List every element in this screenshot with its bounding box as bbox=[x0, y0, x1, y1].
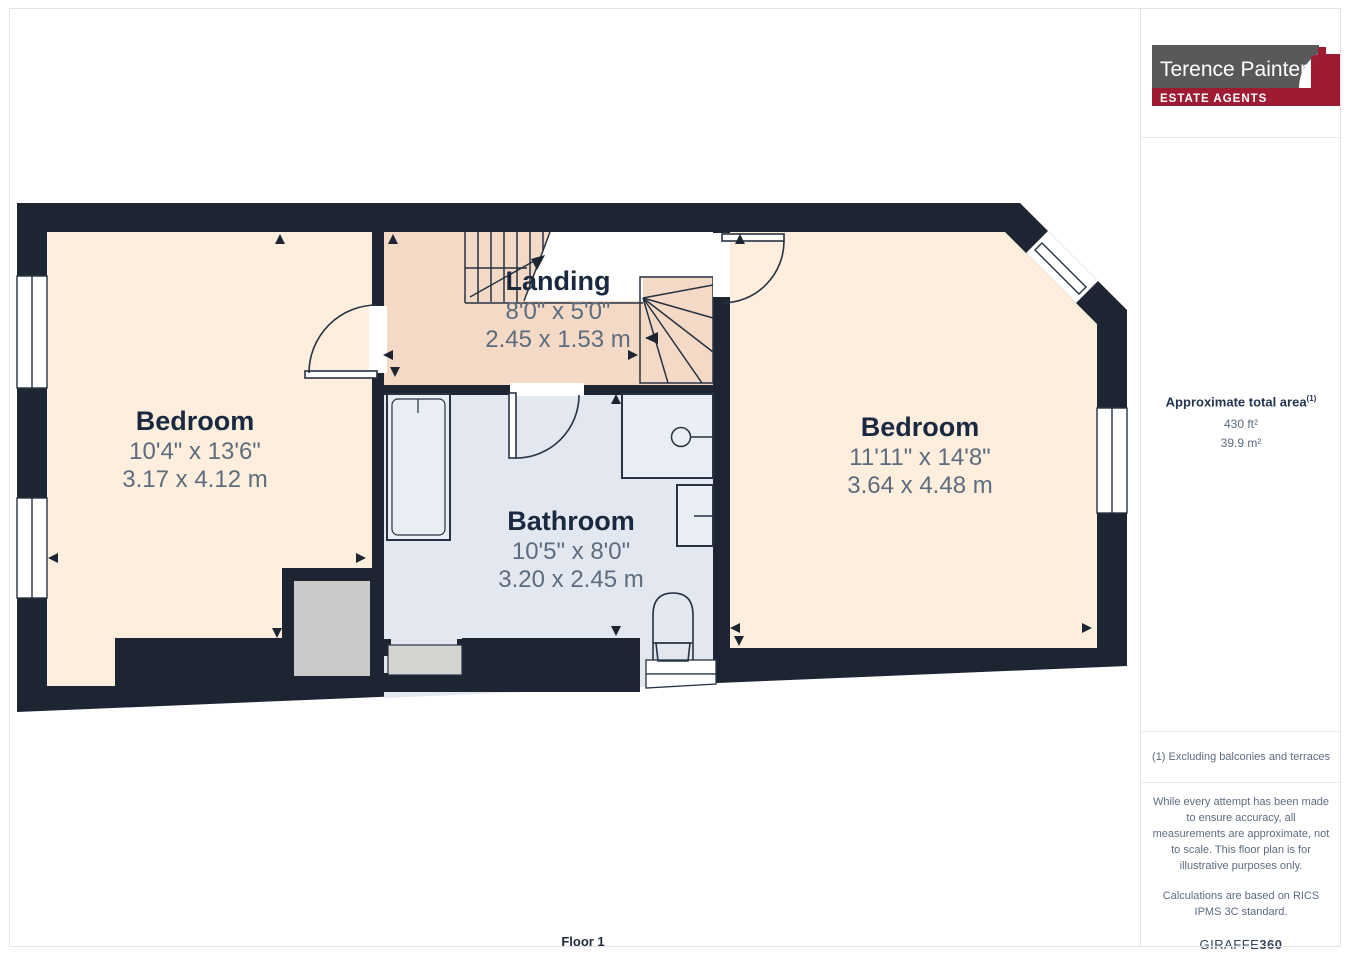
total-area-title: Approximate total area(1) bbox=[1141, 394, 1341, 409]
room-name: Bedroom bbox=[122, 405, 267, 438]
landing-label: Landing 8'0" x 5'0" 2.45 x 1.53 m bbox=[485, 265, 630, 354]
sink bbox=[677, 485, 713, 546]
provider-logo: GIRAFFE360 bbox=[1141, 937, 1341, 952]
standard-note-text: Calculations are based on RICS IPMS 3C s… bbox=[1159, 889, 1323, 921]
window-left-lower bbox=[17, 498, 47, 598]
room-dim-imperial: 10'5" x 8'0" bbox=[498, 538, 643, 566]
stairs-steps-down bbox=[646, 660, 716, 688]
sidebar-divider bbox=[1141, 137, 1341, 138]
floorplan-panel: Landing 8'0" x 5'0" 2.45 x 1.53 m Bedroo… bbox=[10, 9, 1140, 946]
cupboard-void bbox=[294, 581, 370, 676]
room-dim-metric: 3.64 x 4.48 m bbox=[847, 472, 992, 500]
room-dim-metric: 2.45 x 1.53 m bbox=[485, 326, 630, 354]
room-name: Bedroom bbox=[847, 411, 992, 444]
agency-logo: Terence Painter ESTATE AGENTS bbox=[1152, 45, 1341, 107]
total-area-block: Approximate total area(1) 430 ft² 39.9 m… bbox=[1141, 394, 1341, 453]
floorplan-page: Landing 8'0" x 5'0" 2.45 x 1.53 m Bedroo… bbox=[0, 0, 1350, 955]
room-dim-imperial: 8'0" x 5'0" bbox=[485, 298, 630, 326]
total-area-ft: 430 ft² bbox=[1141, 415, 1341, 434]
room-dim-metric: 3.17 x 4.12 m bbox=[122, 466, 267, 494]
hearth-step bbox=[382, 639, 466, 692]
floor-name-label: Floor 1 bbox=[561, 934, 604, 949]
window-right bbox=[1097, 408, 1127, 513]
window-left-upper bbox=[17, 276, 47, 388]
agency-name: Terence Painter bbox=[1160, 58, 1307, 81]
info-sidebar: Terence Painter ESTATE AGENTS Approximat… bbox=[1140, 9, 1341, 946]
bedroom-left-label: Bedroom 10'4" x 13'6" 3.17 x 4.12 m bbox=[122, 405, 267, 494]
room-dim-imperial: 10'4" x 13'6" bbox=[122, 438, 267, 466]
chimney-breast bbox=[462, 638, 640, 692]
room-name: Landing bbox=[485, 265, 630, 298]
legal-block: While every attempt has been made to ens… bbox=[1141, 781, 1341, 952]
provider-suffix: 360 bbox=[1259, 937, 1282, 952]
agency-tagline: ESTATE AGENTS bbox=[1160, 93, 1267, 105]
room-dim-metric: 3.20 x 2.45 m bbox=[498, 566, 643, 594]
disclaimer-text: While every attempt has been made to ens… bbox=[1151, 795, 1331, 875]
provider-name: GIRAFFE bbox=[1199, 937, 1259, 952]
bathroom-label: Bathroom 10'5" x 8'0" 3.20 x 2.45 m bbox=[498, 505, 643, 594]
footnote-block: (1) Excluding balconies and terraces bbox=[1141, 731, 1341, 783]
bedroom-right-label: Bedroom 11'11" x 14'8" 3.64 x 4.48 m bbox=[847, 411, 992, 500]
total-area-footnote-marker: (1) bbox=[1307, 394, 1317, 403]
bathtub bbox=[387, 394, 450, 540]
room-name: Bathroom bbox=[498, 505, 643, 538]
shower bbox=[622, 394, 713, 478]
agency-logo-graphic: Terence Painter ESTATE AGENTS bbox=[1152, 45, 1341, 107]
total-area-title-text: Approximate total area bbox=[1166, 394, 1307, 409]
total-area-m: 39.9 m² bbox=[1141, 434, 1341, 453]
footnote-text: (1) Excluding balconies and terraces bbox=[1152, 751, 1330, 763]
room-dim-imperial: 11'11" x 14'8" bbox=[847, 444, 992, 472]
